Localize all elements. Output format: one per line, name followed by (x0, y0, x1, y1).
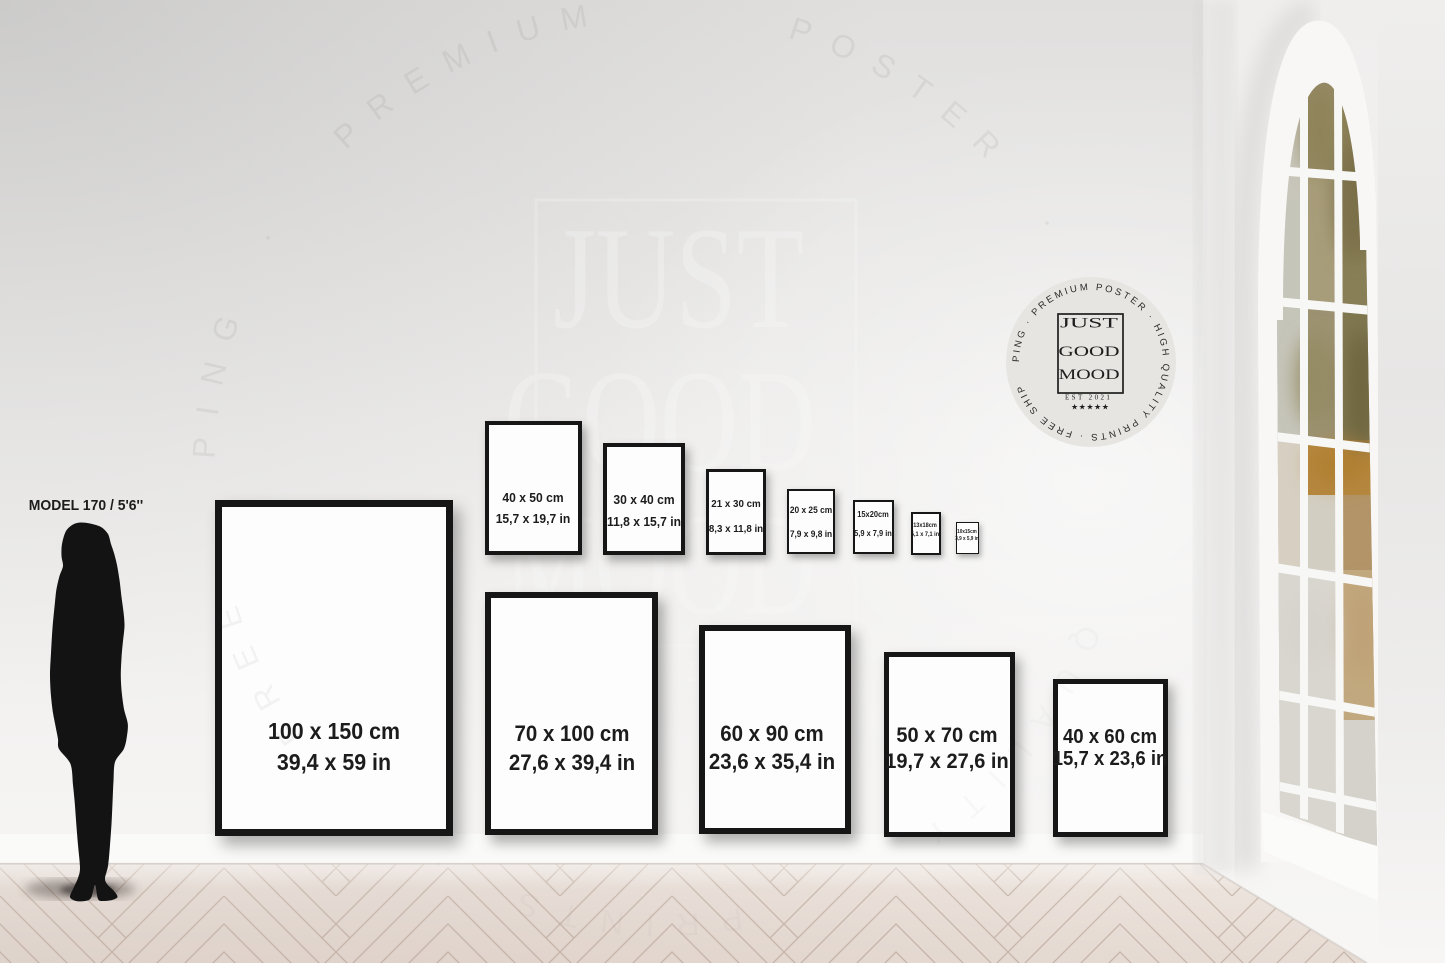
svg-text:MOOD: MOOD (1059, 367, 1120, 383)
svg-text:EST 2021: EST 2021 (1065, 394, 1112, 402)
svg-text:JUST: JUST (1060, 316, 1118, 332)
svg-text:GOOD: GOOD (1059, 344, 1120, 360)
svg-text:★★★★★: ★★★★★ (1071, 403, 1109, 412)
svg-text:JUST: JUST (553, 197, 804, 359)
